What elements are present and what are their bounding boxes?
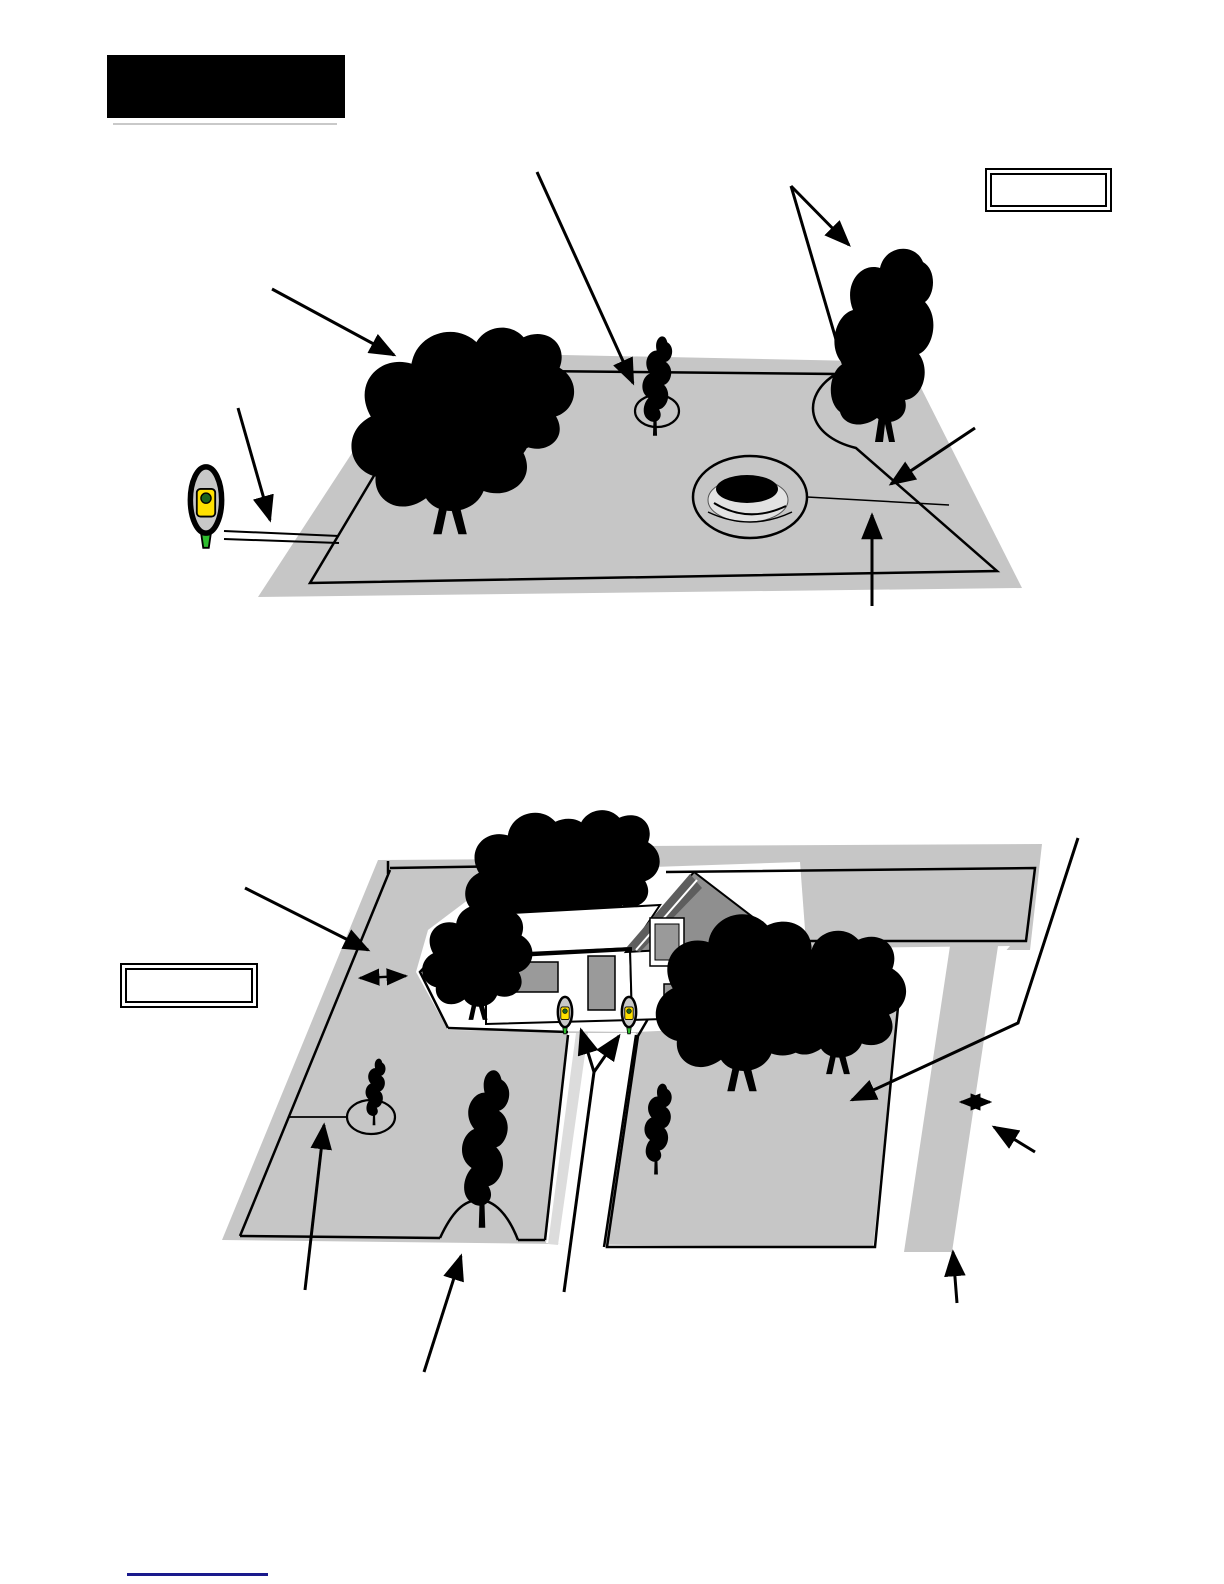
arrow-path-bottom: [953, 1252, 957, 1303]
diagram-canvas: [0, 0, 1224, 1584]
arrow-left-boundary: [245, 888, 368, 950]
footer-rule: [127, 1573, 268, 1576]
arrow-path-edge: [994, 1127, 1035, 1152]
arrow-tree-cluster: [272, 289, 394, 355]
arrow-trunk-loop: [424, 1256, 461, 1372]
charging-station-icon: [190, 467, 221, 548]
lower-diagram: [222, 810, 1078, 1372]
door: [588, 956, 615, 1010]
arrow-lead-wire: [238, 408, 270, 520]
manual-page: [0, 0, 1224, 1584]
upper-diagram: [190, 172, 1022, 606]
